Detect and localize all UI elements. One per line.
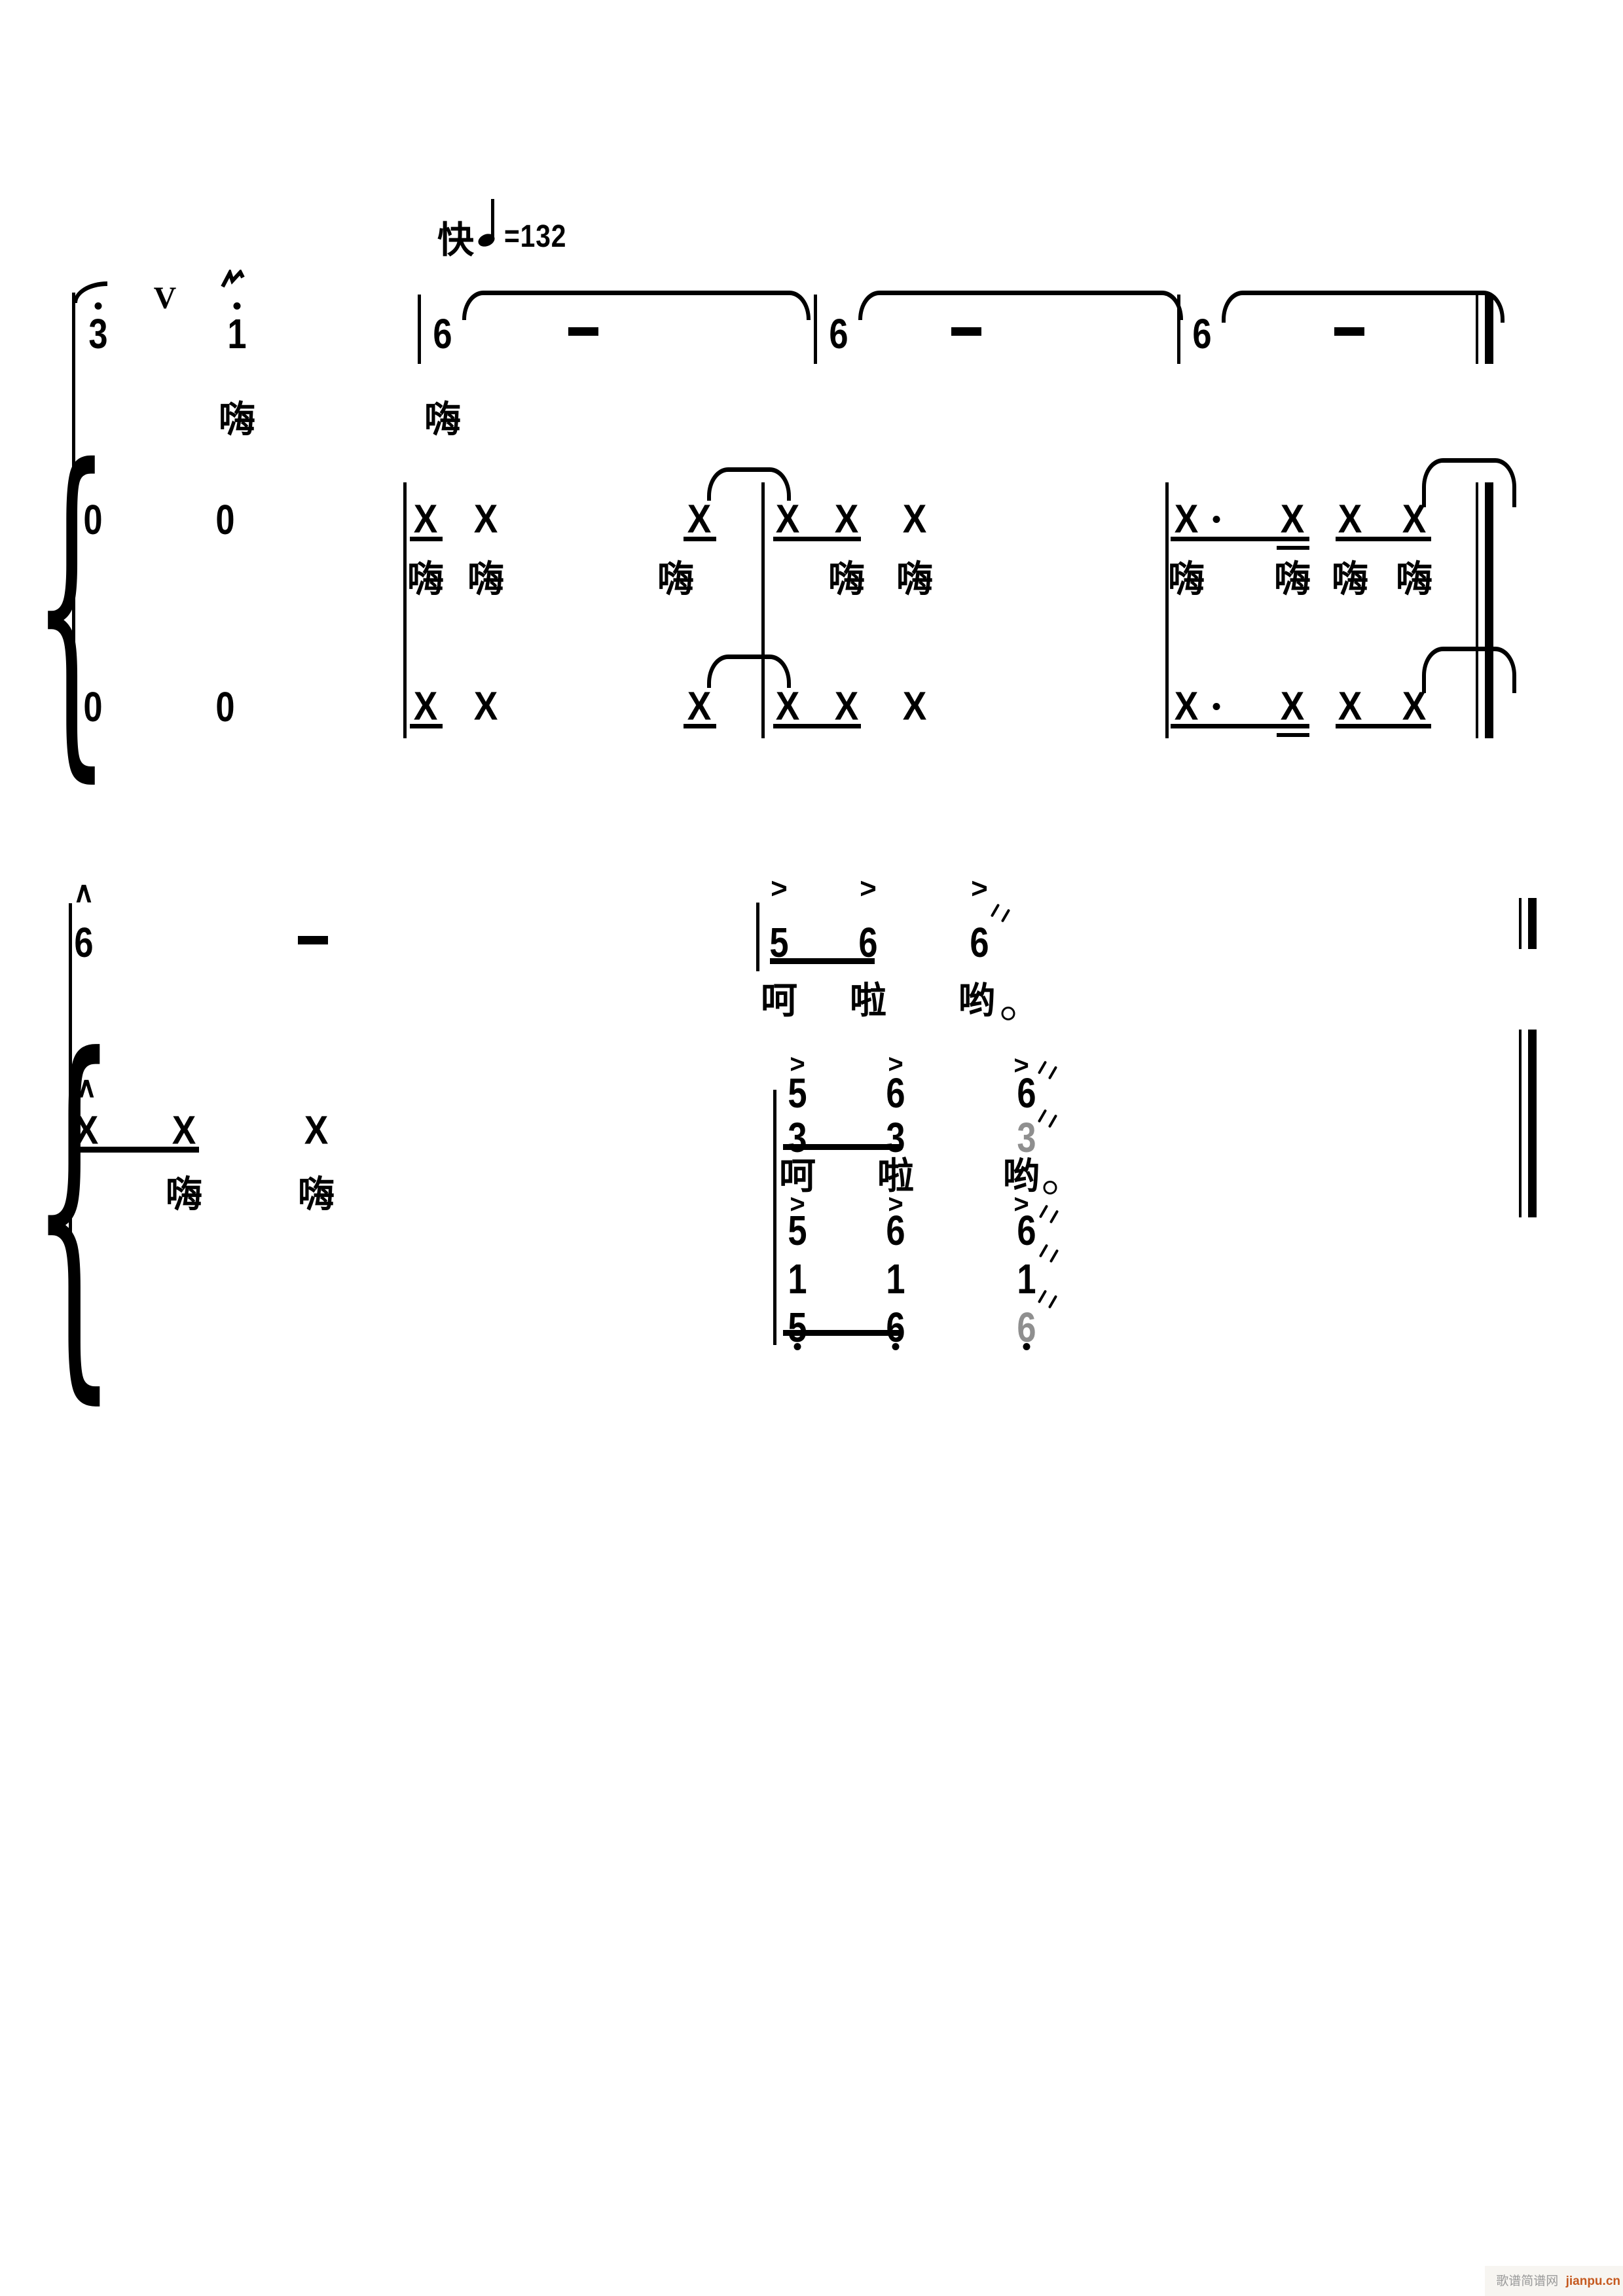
note-6: 6 [886, 1072, 905, 1114]
rest-0: 0 [83, 499, 102, 541]
final-barline-thick [1528, 1030, 1537, 1217]
phrase-hook [73, 281, 107, 303]
x-note: X [687, 499, 712, 539]
x-note: X [1338, 686, 1362, 726]
sixteenth-underline [1277, 546, 1309, 550]
note-6: 6 [858, 922, 877, 963]
tick-stroke [1039, 1204, 1048, 1218]
note-5: 5 [788, 1210, 807, 1251]
rest-0: 0 [215, 686, 234, 728]
mordent-icon [220, 270, 251, 289]
octave-dot-low [892, 1343, 900, 1350]
tick-stroke [1038, 1060, 1047, 1074]
beam-underline [773, 537, 861, 541]
note-6: 6 [1017, 1306, 1036, 1348]
beam-underline [770, 958, 875, 964]
beam-underline [71, 1147, 199, 1153]
x-note: X [1338, 499, 1362, 539]
period-mark [1044, 1181, 1057, 1194]
fall-off-ticks [1042, 1204, 1065, 1227]
barline [761, 482, 765, 738]
lyric-he: 呵 [761, 983, 797, 1020]
note-5: 5 [788, 1072, 807, 1114]
tempo-marking: 快 =132 [437, 194, 608, 266]
lyric-hai: 嗨 [219, 402, 255, 439]
x-note: X [414, 686, 438, 726]
note-6: 6 [886, 1210, 905, 1251]
x-note: X [835, 686, 859, 726]
final-barline-thin [1519, 1030, 1522, 1217]
barline [773, 1090, 776, 1345]
fall-off-ticks [1042, 1244, 1065, 1266]
x-note: X [474, 686, 498, 726]
note-5: 5 [769, 922, 788, 963]
augmentation-dot [1213, 516, 1220, 523]
x-note: X [474, 499, 498, 539]
x-note-dotted: X [1175, 499, 1199, 539]
lyric-yo: 哟 [958, 983, 995, 1020]
note-1: 1 [886, 1258, 905, 1300]
note-1-high: 1 [227, 313, 246, 355]
watermark-site-name: 歌谱简谱网 [1496, 2274, 1558, 2288]
dash-extender [298, 936, 328, 944]
lyric-hai: 嗨 [467, 562, 504, 598]
eighth-underline [410, 724, 443, 728]
note-6: 6 [1017, 1210, 1036, 1251]
note-5: 5 [788, 1306, 807, 1348]
x-note: X [687, 686, 712, 726]
x-note: X [776, 686, 800, 726]
barline [403, 482, 407, 738]
tie-slur [858, 291, 1183, 320]
note-6: 6 [74, 922, 93, 963]
octave-dot-low [1023, 1343, 1030, 1350]
note-3: 3 [88, 313, 107, 355]
eighth-underline [410, 537, 443, 541]
barline [756, 903, 759, 971]
note-3: 3 [886, 1117, 905, 1158]
note-6: 6 [1017, 1072, 1036, 1114]
dash-extender [568, 327, 598, 336]
final-barline-thick [1485, 482, 1493, 738]
note-1: 1 [788, 1258, 807, 1300]
lyric-hai: 嗨 [1168, 562, 1205, 598]
accent-mark: > [860, 874, 877, 903]
note-6: 6 [1192, 313, 1211, 355]
note-6: 6 [886, 1306, 905, 1348]
phrase-end-slur [1422, 458, 1516, 507]
lyric-hai: 嗨 [1396, 562, 1432, 598]
fall-off-ticks [1041, 1289, 1063, 1312]
dash-extender [951, 327, 981, 336]
lyric-hai: 嗨 [1332, 562, 1368, 598]
tick-stroke [1039, 1244, 1048, 1257]
lyric-hai: 嗨 [407, 562, 444, 598]
beam-underline [783, 1330, 902, 1336]
lyric-hai: 嗨 [657, 562, 694, 598]
tick-stroke [1038, 1109, 1047, 1122]
period-mark [1002, 1007, 1015, 1020]
barline [418, 295, 421, 364]
barline [1165, 482, 1169, 738]
phrase-end-slur [1422, 647, 1516, 693]
tie-slur [1222, 291, 1504, 323]
lyric-hai: 嗨 [166, 1177, 202, 1213]
final-barline-thin [1476, 482, 1478, 738]
sheet-music-page: 快 =132 {3V1嗨6嗨6600X嗨X嗨X嗨XX嗨X嗨X嗨X嗨X嗨X嗨00X… [0, 0, 1623, 2296]
rest-0: 0 [83, 686, 102, 728]
lyric-la: 啦 [850, 983, 886, 1020]
x-note: X [172, 1110, 196, 1151]
x-note: X [1281, 686, 1305, 726]
beam-underline [783, 1144, 902, 1150]
tempo-speed-label: 快 [437, 211, 474, 264]
dash-extender [1334, 327, 1364, 336]
lyric-hai: 嗨 [828, 562, 865, 598]
note-6: 6 [829, 313, 848, 355]
marcato-caret: ∧ [76, 1073, 97, 1102]
accent-mark: > [971, 874, 988, 903]
final-barline-thick [1528, 898, 1537, 949]
lyric-hai: 嗨 [298, 1177, 335, 1213]
tick-stroke [1001, 908, 1010, 922]
note-1: 1 [1017, 1258, 1036, 1300]
x-note: X [776, 499, 800, 539]
note-6: 6 [970, 922, 989, 963]
octave-dot-high [234, 302, 241, 310]
sixteenth-underline [1277, 733, 1309, 737]
accent-mark: > [771, 874, 788, 903]
x-note: X [835, 499, 859, 539]
tick-stroke [991, 903, 1000, 917]
x-note: X [304, 1110, 329, 1151]
barline [814, 295, 817, 364]
rest-0: 0 [215, 499, 234, 541]
x-note: X [414, 499, 438, 539]
fall-off-ticks [1041, 1060, 1063, 1083]
x-note-dotted: X [1175, 686, 1199, 726]
x-note: X [1281, 499, 1305, 539]
watermark: 歌谱简谱网 jianpu.cn [1485, 2266, 1623, 2296]
final-barline-thick [1485, 295, 1493, 364]
note-6: 6 [433, 313, 452, 355]
tick-stroke [1048, 1066, 1057, 1079]
tempo-value: =132 [504, 219, 566, 255]
tick-stroke [1049, 1249, 1059, 1263]
tick-stroke [1048, 1295, 1057, 1308]
tick-stroke [1048, 1114, 1057, 1128]
fall-off-ticks [994, 903, 1016, 925]
marcato-caret: ∧ [73, 878, 94, 907]
octave-dot-low [794, 1343, 801, 1350]
x-note: X [903, 499, 927, 539]
watermark-site-url: jianpu.cn [1566, 2274, 1620, 2288]
augmentation-dot [1213, 703, 1220, 710]
lyric-hai: 嗨 [1274, 562, 1311, 598]
octave-dot-high [95, 302, 102, 310]
lyric-hai: 嗨 [896, 562, 933, 598]
eighth-underline [684, 537, 716, 541]
tie-slur [462, 291, 811, 320]
final-barline-thin [1476, 295, 1478, 364]
tick-stroke [1049, 1210, 1059, 1223]
barline [1177, 295, 1180, 364]
note-3: 3 [788, 1117, 807, 1158]
final-barline-thin [1519, 898, 1522, 949]
tick-stroke [1038, 1289, 1047, 1303]
x-note: X [75, 1110, 99, 1151]
x-note: X [903, 686, 927, 726]
note-3: 3 [1017, 1117, 1036, 1158]
beam-underline [773, 724, 861, 728]
fall-off-ticks [1041, 1109, 1063, 1131]
lyric-hai: 嗨 [424, 402, 461, 439]
eighth-underline [684, 724, 716, 728]
breath-mark-v: V [154, 283, 177, 314]
